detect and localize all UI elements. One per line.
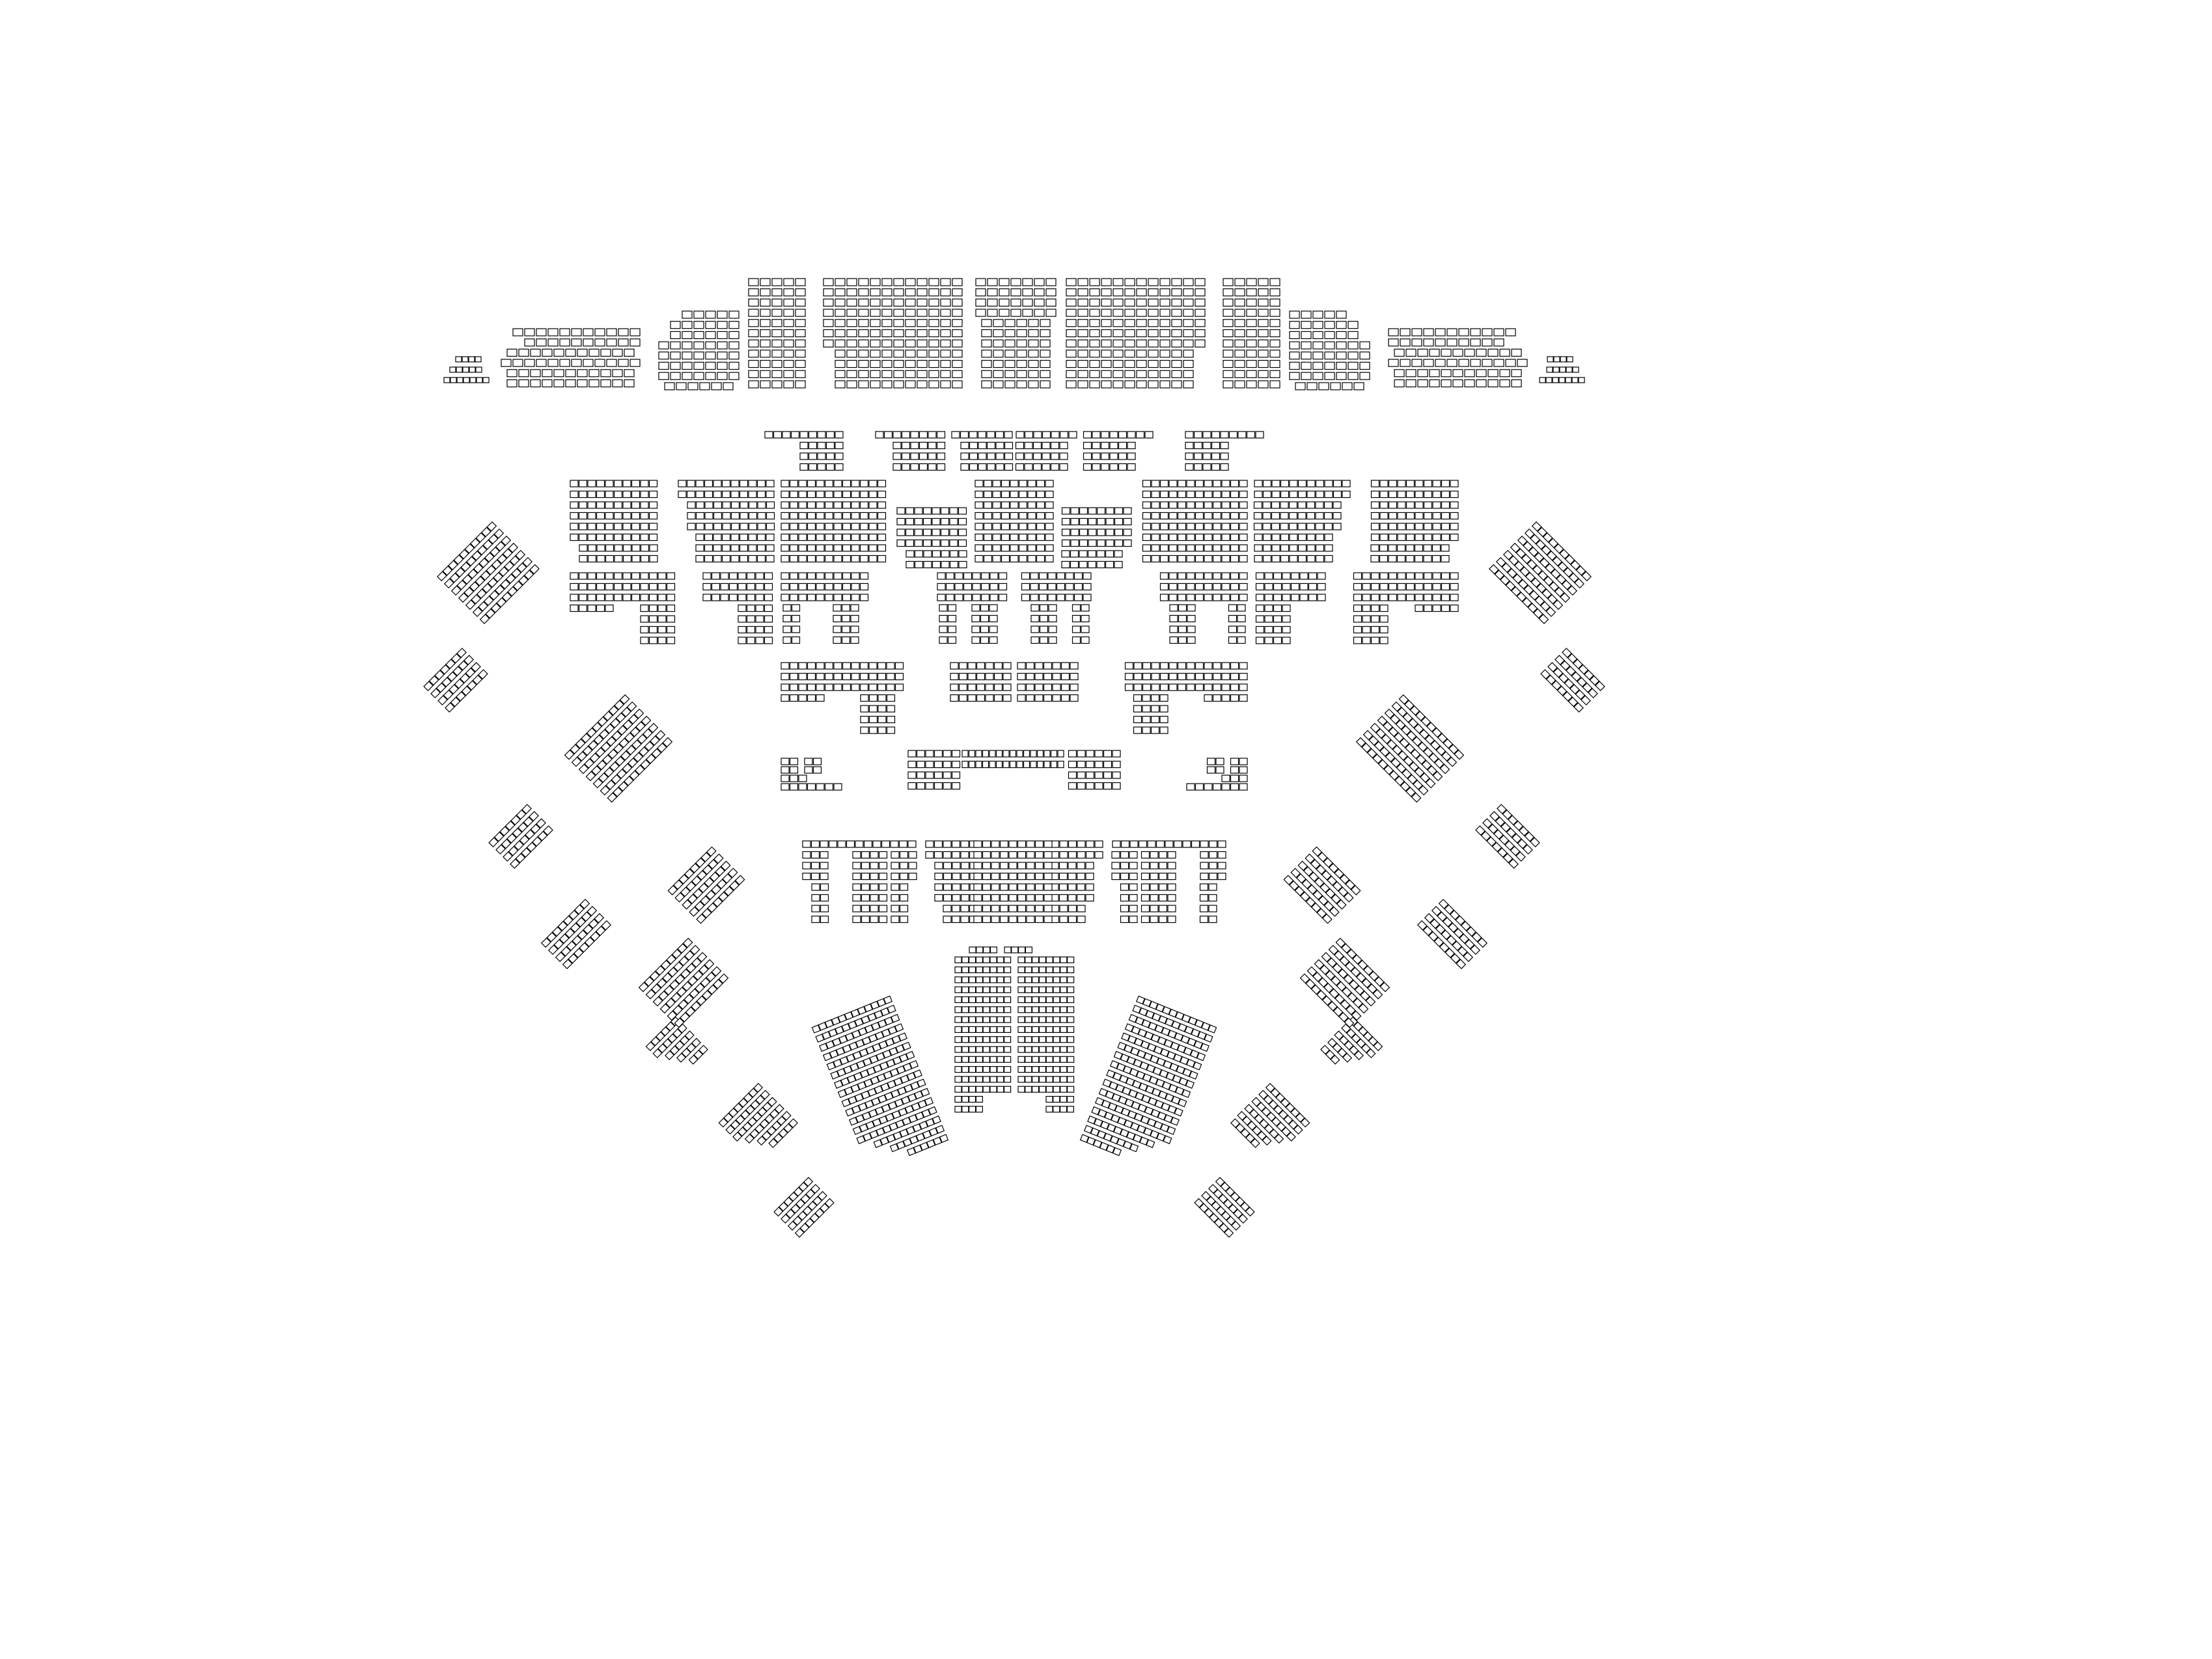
seat[interactable] (961, 884, 969, 890)
seat[interactable] (1066, 340, 1076, 347)
seat[interactable] (879, 873, 887, 880)
seat[interactable] (803, 841, 810, 847)
seat[interactable] (760, 289, 770, 296)
seat[interactable] (926, 750, 933, 757)
seat[interactable] (1239, 767, 1247, 773)
seat[interactable] (969, 987, 976, 993)
seat[interactable] (605, 502, 613, 508)
seat[interactable] (1336, 372, 1346, 379)
seat[interactable] (834, 491, 842, 498)
seat[interactable] (784, 340, 794, 347)
seat[interactable] (784, 299, 794, 306)
seat[interactable] (820, 862, 828, 869)
seat[interactable] (972, 626, 980, 633)
seat[interactable] (799, 502, 807, 508)
seat[interactable] (632, 502, 640, 508)
seat[interactable] (1178, 594, 1186, 601)
seat[interactable] (991, 916, 999, 923)
seat[interactable] (1187, 684, 1195, 691)
seat[interactable] (756, 616, 764, 622)
seat[interactable] (935, 862, 943, 869)
seat[interactable] (908, 750, 916, 757)
seat[interactable] (588, 573, 596, 579)
seat[interactable] (1221, 443, 1228, 449)
seat[interactable] (999, 573, 1007, 579)
seat[interactable] (632, 523, 640, 530)
seat[interactable] (917, 289, 927, 296)
seat[interactable] (1031, 626, 1039, 633)
seat[interactable] (943, 783, 951, 789)
seat[interactable] (658, 616, 666, 622)
seat[interactable] (1032, 987, 1039, 993)
seat[interactable] (1032, 1086, 1039, 1092)
seat[interactable] (976, 1056, 982, 1062)
seat[interactable] (1192, 841, 1200, 847)
seat[interactable] (1169, 556, 1177, 562)
seat[interactable] (955, 1047, 961, 1052)
seat[interactable] (887, 727, 895, 734)
seat[interactable] (671, 331, 680, 338)
seat[interactable] (1077, 884, 1085, 890)
seat[interactable] (714, 502, 722, 508)
seat[interactable] (682, 322, 692, 329)
seat[interactable] (1398, 584, 1405, 590)
seat[interactable] (1216, 767, 1224, 773)
seat[interactable] (1265, 627, 1273, 633)
seat[interactable] (1113, 350, 1123, 357)
seat[interactable] (760, 309, 770, 316)
seat[interactable] (1280, 513, 1288, 519)
seat[interactable] (1187, 584, 1195, 590)
seat[interactable] (859, 350, 868, 357)
seat[interactable] (706, 331, 715, 338)
seat[interactable] (816, 584, 824, 590)
seat[interactable] (650, 605, 657, 612)
seat[interactable] (941, 508, 949, 514)
seat[interactable] (861, 674, 868, 680)
seat[interactable] (843, 513, 851, 519)
seat[interactable] (696, 556, 704, 562)
seat[interactable] (859, 309, 868, 316)
seat[interactable] (1035, 695, 1043, 702)
seat[interactable] (1196, 491, 1204, 498)
seat[interactable] (1137, 279, 1146, 286)
seat[interactable] (1450, 594, 1458, 601)
seat[interactable] (1053, 1026, 1060, 1032)
seat[interactable] (906, 340, 915, 347)
seat[interactable] (1212, 453, 1220, 459)
seat[interactable] (1178, 663, 1186, 669)
seat[interactable] (723, 545, 730, 551)
seat[interactable] (1263, 502, 1271, 508)
seat[interactable] (790, 775, 798, 782)
seat[interactable] (1046, 1017, 1053, 1022)
seat[interactable] (1290, 342, 1299, 349)
seat[interactable] (1307, 491, 1315, 498)
seat[interactable] (1119, 453, 1127, 459)
seat[interactable] (694, 322, 704, 329)
seat[interactable] (952, 309, 962, 316)
seat[interactable] (1161, 480, 1168, 487)
seat[interactable] (1022, 573, 1030, 579)
seat[interactable] (1239, 556, 1247, 562)
seat[interactable] (1062, 562, 1070, 568)
seat[interactable] (1004, 987, 1011, 993)
seat[interactable] (1134, 706, 1142, 712)
seat[interactable] (1068, 1047, 1074, 1052)
seat[interactable] (1172, 381, 1182, 388)
seat[interactable] (579, 594, 587, 601)
seat[interactable] (961, 852, 969, 858)
seat[interactable] (976, 1026, 982, 1032)
seat[interactable] (986, 663, 993, 669)
seat[interactable] (1060, 841, 1068, 847)
seat[interactable] (851, 626, 859, 633)
seat[interactable] (1101, 361, 1111, 368)
seat[interactable] (1433, 545, 1441, 551)
seat[interactable] (1079, 562, 1087, 568)
seat[interactable] (678, 480, 686, 487)
seat[interactable] (805, 758, 812, 765)
seat[interactable] (570, 594, 578, 601)
seat[interactable] (908, 761, 916, 768)
seat[interactable] (962, 1017, 969, 1022)
seat[interactable] (1004, 977, 1011, 983)
seat[interactable] (579, 513, 587, 519)
seat[interactable] (1032, 1076, 1039, 1082)
seat[interactable] (870, 361, 880, 368)
seat[interactable] (1009, 841, 1017, 847)
seat[interactable] (1152, 545, 1159, 551)
seat[interactable] (1424, 584, 1432, 590)
seat[interactable] (1204, 513, 1212, 519)
seat[interactable] (457, 377, 463, 383)
seat[interactable] (1235, 320, 1245, 327)
seat[interactable] (950, 508, 958, 514)
seat[interactable] (1307, 545, 1315, 551)
seat[interactable] (749, 330, 758, 337)
seat[interactable] (1002, 502, 1010, 508)
seat[interactable] (955, 584, 963, 590)
seat[interactable] (962, 1106, 969, 1112)
seat[interactable] (1325, 311, 1334, 318)
seat[interactable] (944, 873, 952, 880)
seat[interactable] (1142, 695, 1150, 702)
seat[interactable] (781, 674, 789, 680)
seat[interactable] (476, 367, 482, 372)
seat[interactable] (929, 350, 939, 357)
seat[interactable] (1010, 750, 1016, 757)
seat[interactable] (1270, 289, 1280, 296)
seat[interactable] (991, 862, 999, 869)
seat[interactable] (1196, 684, 1204, 691)
seat[interactable] (935, 884, 943, 890)
seat[interactable] (1073, 626, 1081, 633)
seat[interactable] (1039, 1007, 1045, 1013)
seat[interactable] (667, 594, 675, 601)
seat[interactable] (1229, 616, 1237, 622)
seat[interactable] (694, 372, 704, 379)
seat[interactable] (1113, 370, 1123, 377)
seat[interactable] (641, 480, 648, 487)
seat[interactable] (1070, 695, 1078, 702)
seat[interactable] (1068, 1026, 1074, 1032)
seat[interactable] (712, 584, 720, 590)
seat[interactable] (1152, 674, 1159, 680)
seat[interactable] (766, 534, 774, 541)
seat[interactable] (760, 320, 770, 327)
seat[interactable] (579, 491, 587, 498)
seat[interactable] (962, 1037, 969, 1043)
seat[interactable] (1038, 761, 1044, 768)
seat[interactable] (823, 320, 833, 327)
seat[interactable] (1070, 663, 1078, 669)
seat[interactable] (976, 279, 986, 286)
seat[interactable] (1406, 370, 1416, 377)
seat[interactable] (870, 299, 880, 306)
seat[interactable] (1039, 1017, 1045, 1022)
seat[interactable] (790, 573, 798, 579)
seat[interactable] (694, 352, 704, 359)
seat[interactable] (1113, 783, 1120, 789)
seat[interactable] (1471, 329, 1480, 336)
seat[interactable] (809, 432, 817, 438)
seat[interactable] (1110, 453, 1118, 459)
seat[interactable] (1424, 329, 1433, 336)
seat[interactable] (1170, 626, 1178, 633)
seat[interactable] (1292, 594, 1299, 601)
seat[interactable] (941, 361, 950, 368)
seat[interactable] (738, 584, 746, 590)
seat[interactable] (597, 573, 605, 579)
seat[interactable] (588, 491, 596, 498)
seat[interactable] (851, 637, 859, 644)
seat[interactable] (1290, 502, 1297, 508)
seat[interactable] (906, 299, 915, 306)
seat[interactable] (1069, 750, 1077, 757)
seat[interactable] (1017, 340, 1027, 347)
seat[interactable] (1380, 627, 1388, 633)
seat[interactable] (1005, 330, 1015, 337)
seat[interactable] (816, 523, 824, 530)
seat[interactable] (952, 873, 960, 880)
seat[interactable] (772, 299, 782, 306)
seat[interactable] (1040, 340, 1050, 347)
seat[interactable] (650, 616, 657, 622)
seat[interactable] (999, 289, 1009, 296)
seat[interactable] (853, 916, 861, 923)
seat[interactable] (1068, 987, 1074, 993)
seat[interactable] (1415, 491, 1423, 498)
seat[interactable] (1168, 905, 1176, 912)
seat[interactable] (993, 340, 1003, 347)
seat[interactable] (982, 330, 991, 337)
seat[interactable] (749, 523, 757, 530)
seat[interactable] (1066, 573, 1073, 579)
seat[interactable] (758, 502, 766, 508)
seat[interactable] (1204, 663, 1212, 669)
seat[interactable] (1247, 370, 1256, 377)
seat[interactable] (1150, 852, 1158, 858)
seat[interactable] (1239, 523, 1247, 530)
seat[interactable] (781, 594, 789, 601)
seat[interactable] (1112, 852, 1120, 858)
seat[interactable] (1282, 573, 1290, 579)
seat[interactable] (1152, 513, 1159, 519)
seat[interactable] (1196, 674, 1204, 680)
seat[interactable] (1060, 997, 1067, 1003)
seat[interactable] (1235, 381, 1245, 388)
seat[interactable] (749, 513, 757, 519)
seat[interactable] (1203, 432, 1211, 438)
seat[interactable] (641, 616, 648, 622)
seat[interactable] (1025, 987, 1032, 993)
seat[interactable] (969, 1056, 976, 1062)
seat[interactable] (1027, 862, 1034, 869)
seat[interactable] (808, 513, 816, 519)
seat[interactable] (1142, 873, 1150, 880)
seat[interactable] (1430, 349, 1439, 356)
seat[interactable] (976, 977, 982, 983)
seat[interactable] (1160, 370, 1170, 377)
seat[interactable] (772, 370, 782, 377)
seat[interactable] (1389, 523, 1397, 530)
seat[interactable] (1018, 967, 1025, 973)
seat[interactable] (1229, 605, 1237, 611)
seat[interactable] (935, 750, 943, 757)
seat[interactable] (792, 616, 800, 622)
seat[interactable] (1222, 523, 1230, 530)
seat[interactable] (1101, 370, 1111, 377)
seat[interactable] (1086, 761, 1094, 768)
seat[interactable] (730, 584, 738, 590)
seat[interactable] (1264, 545, 1271, 551)
seat[interactable] (1221, 464, 1228, 471)
seat[interactable] (816, 784, 824, 790)
seat[interactable] (1254, 534, 1262, 541)
seat[interactable] (1254, 480, 1262, 487)
seat[interactable] (749, 556, 756, 562)
seat[interactable] (1316, 513, 1323, 519)
seat[interactable] (1018, 1056, 1025, 1062)
seat[interactable] (1069, 783, 1077, 789)
seat[interactable] (658, 627, 666, 633)
seat[interactable] (758, 480, 766, 487)
seat[interactable] (1125, 350, 1135, 357)
seat[interactable] (800, 464, 808, 471)
seat[interactable] (1139, 841, 1147, 847)
seat[interactable] (1016, 443, 1024, 449)
seat[interactable] (1113, 340, 1123, 347)
seat[interactable] (1218, 862, 1226, 869)
seat[interactable] (650, 523, 657, 530)
seat[interactable] (1204, 480, 1212, 487)
seat[interactable] (1027, 841, 1034, 847)
seat[interactable] (1019, 523, 1027, 530)
seat[interactable] (542, 380, 552, 387)
seat[interactable] (1121, 916, 1129, 923)
seat[interactable] (1150, 862, 1158, 869)
seat[interactable] (706, 372, 715, 379)
seat[interactable] (1172, 320, 1182, 327)
seat[interactable] (1258, 330, 1268, 337)
seat[interactable] (1394, 349, 1404, 356)
seat[interactable] (783, 626, 791, 633)
seat[interactable] (1223, 279, 1233, 286)
seat[interactable] (1127, 464, 1135, 471)
seat[interactable] (1316, 480, 1324, 487)
seat[interactable] (469, 357, 475, 362)
seat[interactable] (861, 523, 868, 530)
seat[interactable] (851, 605, 859, 611)
seat[interactable] (955, 987, 961, 993)
seat[interactable] (952, 772, 960, 778)
seat[interactable] (1053, 1007, 1060, 1013)
seat[interactable] (969, 967, 976, 973)
seat[interactable] (861, 584, 868, 590)
seat[interactable] (588, 523, 596, 530)
seat[interactable] (740, 545, 748, 551)
seat[interactable] (1230, 432, 1237, 438)
seat[interactable] (706, 322, 715, 329)
seat[interactable] (961, 841, 969, 847)
seat[interactable] (1046, 967, 1053, 973)
seat[interactable] (1160, 695, 1168, 702)
seat[interactable] (879, 862, 887, 869)
seat[interactable] (1075, 573, 1083, 579)
seat[interactable] (917, 750, 925, 757)
seat[interactable] (993, 330, 1003, 337)
seat[interactable] (969, 1106, 976, 1112)
seat[interactable] (962, 750, 968, 757)
seat[interactable] (1237, 616, 1245, 622)
seat[interactable] (1040, 616, 1048, 622)
seat[interactable] (834, 784, 842, 790)
seat[interactable] (1160, 727, 1168, 734)
seat[interactable] (1222, 491, 1230, 498)
seat[interactable] (1450, 573, 1458, 579)
seat[interactable] (1221, 453, 1228, 459)
seat[interactable] (1004, 947, 1011, 953)
seat[interactable] (974, 916, 982, 923)
seat[interactable] (1160, 361, 1170, 368)
seat[interactable] (688, 383, 698, 390)
seat[interactable] (1035, 674, 1043, 680)
seat[interactable] (859, 320, 868, 327)
seat[interactable] (659, 342, 669, 349)
seat[interactable] (1447, 359, 1457, 366)
seat[interactable] (1380, 523, 1388, 530)
seat[interactable] (795, 309, 805, 316)
seat[interactable] (1389, 329, 1398, 336)
seat[interactable] (1031, 605, 1039, 611)
seat[interactable] (952, 750, 960, 757)
seat[interactable] (548, 359, 558, 366)
seat[interactable] (615, 491, 622, 498)
seat[interactable] (641, 523, 648, 530)
seat[interactable] (1450, 605, 1458, 612)
seat[interactable] (1129, 852, 1137, 858)
seat[interactable] (712, 383, 721, 390)
seat[interactable] (1254, 491, 1262, 498)
seat[interactable] (915, 508, 922, 514)
seat[interactable] (1017, 674, 1025, 680)
seat[interactable] (835, 299, 845, 306)
seat[interactable] (972, 605, 980, 611)
seat[interactable] (1210, 873, 1217, 880)
seat[interactable] (1169, 594, 1177, 601)
seat[interactable] (444, 377, 450, 383)
